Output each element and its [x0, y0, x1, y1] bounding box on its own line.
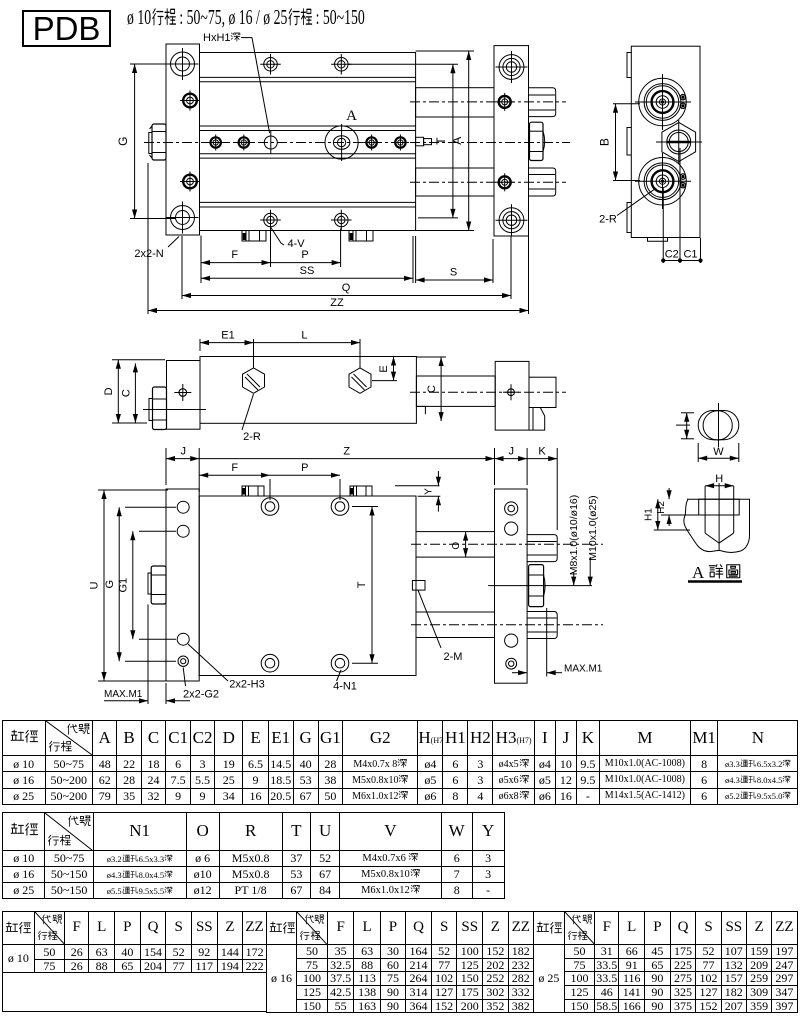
- svg-text:Z: Z: [343, 446, 350, 458]
- svg-text:A: A: [346, 108, 357, 124]
- svg-text:J: J: [508, 446, 514, 458]
- svg-text:O: O: [451, 542, 462, 550]
- svg-text:T: T: [356, 581, 368, 588]
- svg-text:2x2-G2: 2x2-G2: [183, 689, 219, 701]
- svg-text:E: E: [378, 365, 390, 372]
- svg-text:ZZ: ZZ: [330, 297, 344, 309]
- svg-text:G1: G1: [118, 578, 130, 593]
- svg-text:2-R: 2-R: [243, 431, 261, 443]
- svg-text:2-M: 2-M: [444, 651, 463, 663]
- svg-text:T: T: [434, 137, 448, 145]
- svg-text:Q: Q: [342, 282, 351, 294]
- svg-text:C: C: [426, 385, 438, 393]
- svg-text:A: A: [450, 137, 464, 145]
- svg-text:W: W: [713, 446, 724, 458]
- svg-text:Y: Y: [424, 488, 435, 495]
- svg-text:4-N1: 4-N1: [333, 681, 357, 693]
- svg-text:SS: SS: [300, 265, 315, 277]
- svg-text:P: P: [301, 249, 308, 261]
- svg-text:H1: H1: [644, 508, 655, 521]
- svg-text:2x2-N: 2x2-N: [134, 248, 163, 260]
- svg-text:HxH1: HxH1: [203, 32, 231, 44]
- svg-text:F: F: [231, 462, 238, 474]
- svg-text:C1: C1: [683, 249, 697, 261]
- svg-text:U: U: [89, 581, 101, 589]
- svg-text:G: G: [116, 137, 130, 146]
- svg-text:S: S: [450, 267, 457, 279]
- svg-text:2-R: 2-R: [599, 214, 617, 226]
- svg-text:P: P: [301, 462, 308, 474]
- svg-text:H2: H2: [656, 501, 667, 514]
- svg-text:C2: C2: [665, 249, 679, 261]
- svg-text:MAX.M1: MAX.M1: [564, 664, 603, 675]
- svg-text:G: G: [104, 580, 116, 589]
- svg-text:MAX.M1: MAX.M1: [104, 689, 143, 700]
- svg-text:2x2-H3: 2x2-H3: [229, 679, 264, 691]
- svg-text:C: C: [121, 389, 133, 397]
- svg-text:H: H: [715, 473, 723, 485]
- svg-text:M8x1.0(ø10/ø16): M8x1.0(ø10/ø16): [568, 495, 580, 576]
- svg-text:E1: E1: [221, 330, 234, 342]
- svg-text:D: D: [103, 387, 115, 395]
- svg-text:F: F: [231, 249, 238, 261]
- svg-text:L: L: [301, 330, 307, 342]
- svg-text:M10x1.0(ø25): M10x1.0(ø25): [587, 495, 599, 560]
- svg-text:A: A: [692, 563, 705, 582]
- svg-text:B: B: [598, 138, 612, 146]
- svg-text:K: K: [538, 446, 546, 458]
- svg-text:J: J: [180, 446, 186, 458]
